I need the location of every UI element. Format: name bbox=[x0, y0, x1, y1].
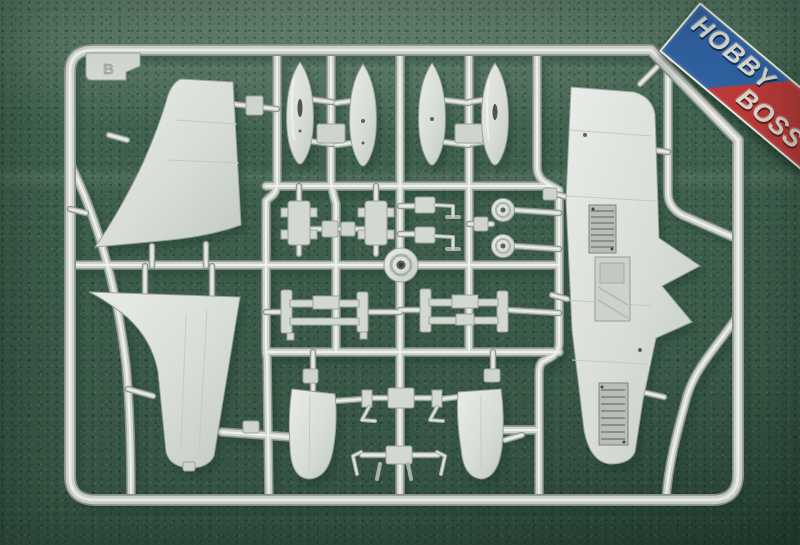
sprue-gate-tag: B bbox=[103, 61, 114, 78]
wheel-well-ribs-upper bbox=[591, 211, 614, 247]
part-l-brackets bbox=[415, 197, 459, 249]
sprue-gate-tab: B bbox=[86, 53, 140, 80]
part-wheels bbox=[492, 199, 515, 258]
part-wheel-hub bbox=[384, 248, 418, 282]
sprue-graphic: B bbox=[0, 0, 800, 545]
part-vertical-stabilizer bbox=[95, 79, 241, 247]
photo-model-kit-sprue: B bbox=[0, 0, 800, 545]
